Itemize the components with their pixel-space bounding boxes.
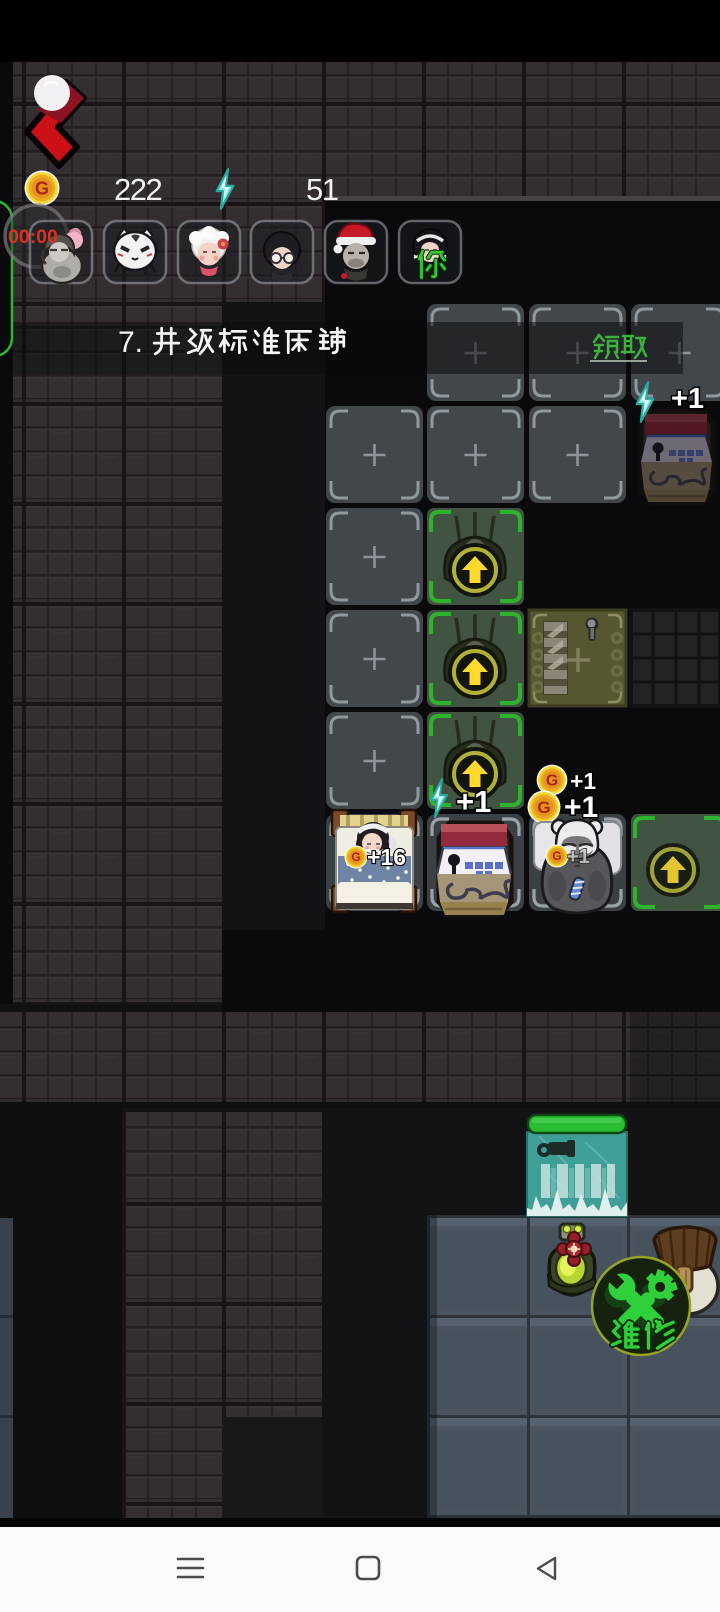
svg-text:222: 222 [114,172,161,207]
svg-text:51: 51 [306,172,338,207]
svg-text:7.: 7. [118,326,143,359]
svg-text:+1: +1 [567,846,590,868]
svg-text:+1: +1 [456,784,491,819]
svg-text:00:00: 00:00 [8,226,58,248]
svg-text:+1: +1 [671,383,704,415]
svg-text:+16: +16 [367,844,406,870]
